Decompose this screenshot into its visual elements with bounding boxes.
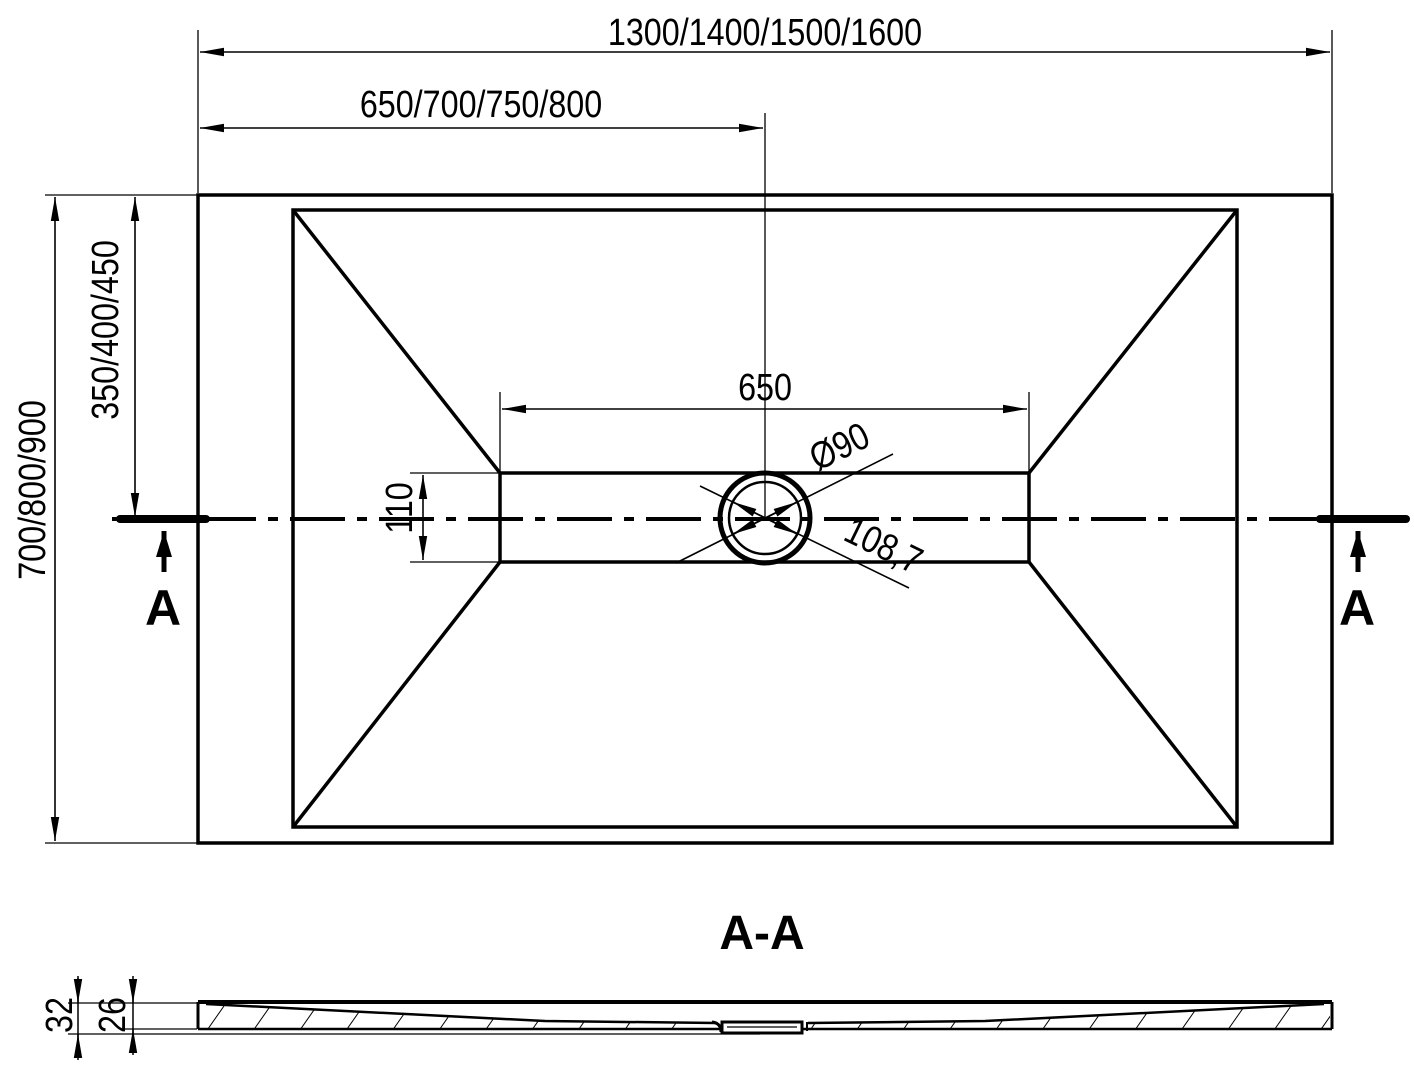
- section-marker-left-label: A: [145, 580, 181, 636]
- section-title: A-A: [719, 907, 804, 960]
- section-view: A-A: [39, 907, 1332, 1060]
- dim-drain-diameter-label: Ø90: [803, 415, 876, 480]
- section-marker-right-label: A: [1339, 580, 1375, 636]
- section-drain-recess: [712, 1022, 807, 1033]
- technical-drawing-shower-tray: 1300/1400/1500/1600 650/700/750/800 700/…: [0, 0, 1414, 1066]
- dim-channel-width-label: 110: [379, 482, 421, 533]
- dim-overall-width-label: 1300/1400/1500/1600: [608, 12, 922, 54]
- dim-inner-height-label: 26: [92, 997, 134, 1033]
- extension-lines: [45, 30, 1332, 843]
- dim-offset-width-label: 650/700/750/800: [360, 84, 602, 126]
- drawing-canvas: 1300/1400/1500/1600 650/700/750/800 700/…: [0, 0, 1414, 1066]
- dim-channel-length-label: 650: [738, 367, 792, 409]
- dim-total-height-label: 32: [39, 997, 81, 1033]
- dim-overall-depth-label: 700/800/900: [12, 400, 54, 580]
- dimension-lines: [55, 52, 1330, 841]
- plan-view: 1300/1400/1500/1600 650/700/750/800 700/…: [12, 12, 1406, 843]
- dim-offset-depth-label: 350/400/450: [85, 240, 127, 420]
